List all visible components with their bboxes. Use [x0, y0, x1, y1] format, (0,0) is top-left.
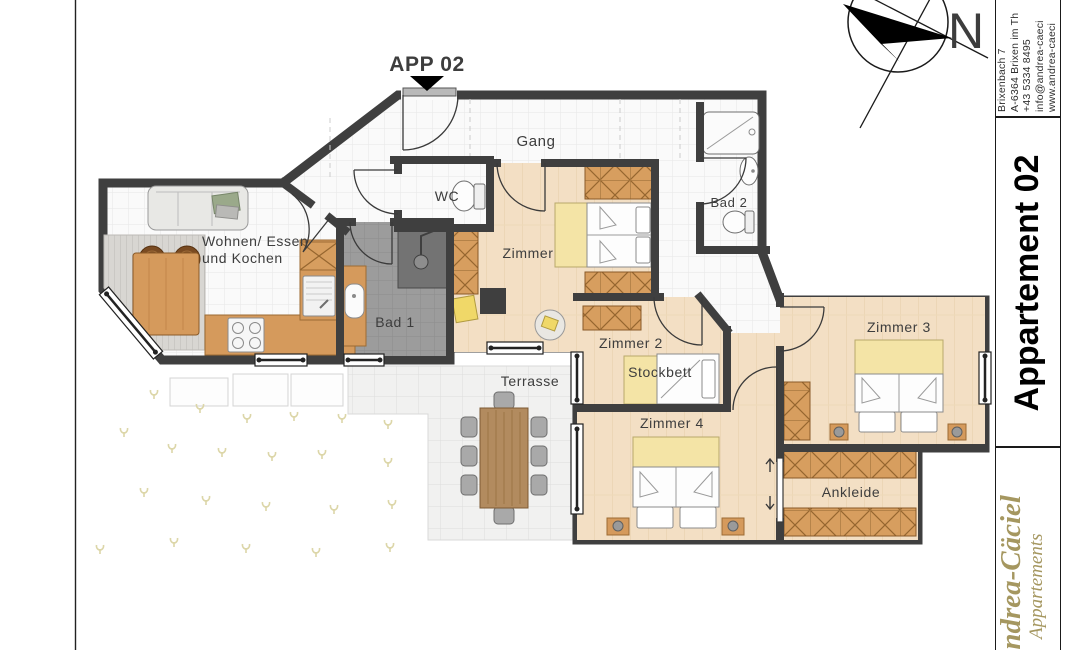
- wardrobe-row: [784, 508, 916, 536]
- app-title: APP 02: [389, 53, 465, 76]
- label-ankleide: Ankleide: [822, 484, 881, 500]
- pillow: [859, 412, 895, 432]
- address-line: Brixenbach 7: [996, 0, 1009, 112]
- wardrobe: [585, 272, 655, 294]
- washbasin: [740, 157, 758, 185]
- pillow: [636, 207, 650, 233]
- pillow: [702, 360, 715, 398]
- grass-sprouts: [96, 390, 395, 557]
- floor-plan-svg: N APP 02 Gang WC Wohnen/ Essen und Koche…: [0, 0, 1088, 650]
- window: [571, 352, 583, 404]
- pillow: [636, 237, 650, 263]
- window: [979, 352, 991, 404]
- column: [480, 288, 506, 314]
- floor-plan-page: N APP 02 Gang WC Wohnen/ Essen und Koche…: [0, 0, 1088, 650]
- washbasin: [345, 284, 364, 318]
- titleblock-logo: Andrea-Cäciel Appartements: [995, 447, 1061, 650]
- label-zimmer3: Zimmer 3: [867, 319, 931, 335]
- window: [487, 342, 543, 354]
- compass-needle: [843, 4, 952, 44]
- bed-blanket: [633, 437, 719, 467]
- window: [344, 354, 384, 366]
- wardrobe: [585, 165, 655, 199]
- logo-subtitle: Appartements: [1026, 447, 1047, 650]
- wardrobe: [583, 306, 641, 330]
- wardrobe-row: [784, 450, 916, 478]
- wardrobe: [784, 382, 810, 440]
- label-wohnen-1: Wohnen/ Essen: [202, 233, 308, 249]
- label-bad2: Bad 2: [711, 195, 748, 210]
- address-line: +43 5334 8495: [1021, 0, 1034, 112]
- label-wohnen-2: und Kochen: [202, 250, 283, 266]
- window: [255, 354, 307, 366]
- label-wc: WC: [435, 188, 460, 204]
- room-terrasse: [348, 366, 577, 540]
- label-gang: Gang: [516, 133, 555, 150]
- apartment-title: Appartement 02: [996, 118, 1061, 447]
- compass-label: N: [948, 3, 985, 59]
- address-line: info@andrea-caeci: [1034, 0, 1047, 112]
- label-zimmer: Zimmer: [502, 245, 553, 261]
- pillow: [901, 412, 937, 432]
- bed-blanket: [555, 203, 587, 267]
- wardrobe: [452, 226, 478, 294]
- titleblock-apartment: Appartement 02: [995, 117, 1061, 447]
- label-zimmer4: Zimmer 4: [640, 415, 704, 431]
- address-line: A-6364 Brixen im Th: [1009, 0, 1022, 112]
- label-zimmer2: Zimmer 2: [599, 335, 663, 351]
- window: [571, 424, 583, 514]
- label-terrasse: Terrasse: [501, 373, 559, 389]
- titleblock-address: Brixenbach 7 A-6364 Brixen im Th +43 533…: [995, 0, 1061, 117]
- label-bad1: Bad 1: [375, 314, 415, 330]
- pillow: [637, 507, 673, 528]
- label-stockbett: Stockbett: [628, 364, 692, 380]
- address-line: www.andrea-caeci: [1046, 0, 1059, 112]
- logo-name: Andrea-Cäciel: [996, 447, 1026, 650]
- entrance-threshold: [403, 88, 456, 96]
- pillow: [680, 507, 716, 528]
- bed-blanket: [855, 340, 943, 374]
- chair: [452, 295, 478, 322]
- toilet: [723, 211, 747, 233]
